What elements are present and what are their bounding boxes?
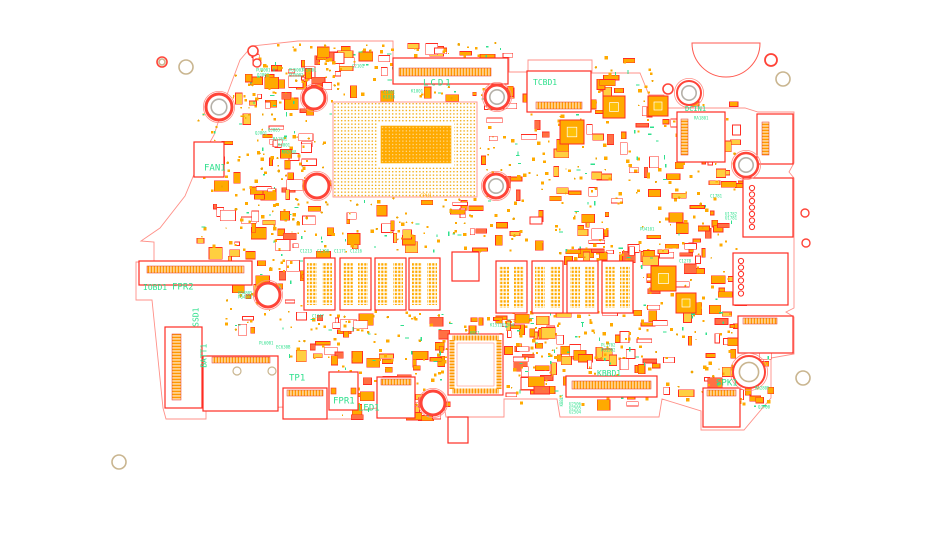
- component: [363, 378, 371, 385]
- via: [233, 95, 235, 97]
- pad: [693, 216, 696, 219]
- silk-tick: [387, 53, 391, 54]
- pad: [694, 331, 696, 333]
- pad: [239, 156, 241, 158]
- connector-kbbd1: [566, 376, 657, 397]
- via: [560, 116, 562, 118]
- silk-tick: [621, 398, 624, 399]
- ref-label-TP1: TP1: [289, 374, 305, 384]
- pad: [438, 372, 441, 375]
- component: [506, 393, 517, 397]
- pad: [658, 168, 662, 172]
- silk-tick: [235, 325, 237, 326]
- silk-tick: [273, 105, 276, 106]
- pad: [568, 169, 571, 172]
- silk-tick: [692, 315, 693, 318]
- via: [565, 168, 566, 169]
- pad: [604, 157, 608, 161]
- silk-tick: [664, 155, 665, 159]
- connector-wlan1: [203, 356, 278, 411]
- cpu-die: [381, 126, 451, 163]
- pad: [493, 147, 495, 149]
- pad: [293, 48, 296, 51]
- component: [733, 125, 741, 135]
- pad: [541, 355, 543, 357]
- via: [297, 221, 300, 224]
- via: [676, 333, 678, 335]
- pad: [637, 337, 639, 339]
- pad: [278, 268, 280, 270]
- pad: [510, 250, 512, 252]
- qfn-center-pad: [659, 274, 669, 284]
- component: [285, 160, 290, 169]
- silk-tick: [433, 361, 437, 362]
- silk-tick: [269, 214, 270, 216]
- component: [629, 168, 639, 173]
- pad: [578, 315, 581, 318]
- pad: [310, 46, 312, 48]
- pad: [662, 250, 664, 252]
- connector-pin-strip: [287, 390, 323, 396]
- via: [655, 351, 657, 353]
- pad: [375, 66, 378, 69]
- component: [729, 102, 738, 107]
- via: [565, 193, 567, 195]
- via: [342, 415, 344, 417]
- via: [521, 366, 523, 368]
- pad: [343, 94, 345, 96]
- silk-tick: [550, 361, 551, 364]
- pad: [717, 234, 719, 236]
- component: [293, 244, 298, 248]
- component-cluster: [595, 56, 654, 96]
- pad: [689, 175, 692, 178]
- ref-label-KBBD1: KBBD1: [597, 369, 621, 378]
- component: [615, 88, 624, 92]
- pad: [287, 266, 289, 268]
- component: [696, 268, 704, 273]
- via: [308, 137, 310, 139]
- pad: [340, 68, 342, 70]
- via: [296, 136, 298, 138]
- pad: [589, 319, 591, 321]
- via: [698, 253, 700, 255]
- via: [574, 178, 576, 180]
- ddr-pad-column: [307, 263, 317, 305]
- pad: [698, 302, 701, 305]
- pad: [618, 192, 621, 195]
- pad: [248, 84, 250, 86]
- via: [397, 239, 399, 241]
- pad: [332, 75, 335, 78]
- pad: [545, 383, 547, 385]
- silk-tick: [576, 169, 580, 170]
- component: [317, 47, 329, 57]
- silk-tick: [517, 330, 520, 331]
- component: [487, 118, 503, 123]
- component: [710, 211, 714, 215]
- pad: [474, 198, 477, 201]
- component: [495, 235, 502, 245]
- component: [347, 213, 356, 219]
- pad: [252, 93, 255, 96]
- silk-tick: [636, 356, 639, 357]
- via: [280, 67, 283, 70]
- via: [352, 359, 354, 361]
- pad: [301, 305, 303, 307]
- via: [457, 43, 460, 46]
- pad: [487, 317, 490, 320]
- pad: [283, 259, 285, 261]
- pad: [278, 248, 280, 250]
- pad: [382, 44, 384, 46]
- pad: [306, 160, 308, 162]
- mount-hole-ring: [801, 209, 809, 217]
- via: [387, 316, 390, 319]
- component: [251, 327, 255, 333]
- component: [627, 402, 639, 406]
- pad: [595, 356, 598, 359]
- silk-tick: [615, 72, 616, 75]
- pad: [228, 169, 230, 171]
- pad: [415, 373, 417, 375]
- pad: [610, 323, 613, 326]
- pad: [454, 230, 457, 233]
- via: [589, 314, 591, 316]
- ref-label-FPR2: FPR2: [172, 283, 194, 293]
- component: [297, 312, 307, 320]
- component: [476, 229, 487, 234]
- ref-label-small-K1801: K1801: [411, 88, 424, 93]
- pad: [628, 338, 631, 341]
- connector-pin-strip: [399, 68, 491, 76]
- mount-hole-ring: [765, 54, 777, 66]
- ref-label-small-PQ4313: PQ4313: [238, 294, 253, 299]
- pad: [666, 357, 668, 359]
- silk-tick: [531, 323, 535, 324]
- pad: [708, 384, 710, 386]
- component: [719, 288, 725, 292]
- ref-label-small-C2101: C2101: [352, 63, 365, 68]
- pad: [249, 186, 252, 189]
- silk-tick: [263, 174, 265, 175]
- pad: [698, 170, 700, 172]
- through-hole-pin: [749, 192, 754, 197]
- pad: [728, 278, 730, 280]
- component: [197, 238, 204, 243]
- pad: [589, 371, 592, 374]
- component: [591, 249, 604, 252]
- through-hole-pin: [738, 258, 743, 263]
- pad: [660, 302, 663, 305]
- via: [718, 369, 719, 370]
- silk-tick: [610, 362, 611, 364]
- pad: [548, 141, 550, 143]
- pad: [417, 382, 419, 384]
- silk-tick: [517, 152, 518, 156]
- mount-hole-ring: [253, 59, 261, 67]
- silk-tick: [364, 200, 365, 203]
- pad: [646, 329, 648, 331]
- pad: [634, 169, 637, 172]
- ref-label-small-RA2805: RA2805: [755, 385, 770, 390]
- pad: [532, 339, 535, 342]
- pad: [524, 357, 526, 359]
- pad: [507, 209, 510, 212]
- via: [549, 179, 551, 181]
- component: [653, 321, 667, 326]
- component: [557, 188, 569, 194]
- pad: [604, 354, 606, 356]
- pad: [375, 310, 377, 312]
- pad: [514, 202, 517, 205]
- connector-pin-strip: [743, 318, 777, 324]
- pad: [575, 212, 577, 214]
- component: [690, 206, 704, 209]
- via: [221, 185, 223, 187]
- silk-tick: [345, 367, 346, 370]
- silk-tick: [411, 351, 412, 354]
- pad: [702, 296, 705, 299]
- pad: [240, 115, 242, 117]
- pad: [591, 190, 593, 192]
- pad: [234, 286, 236, 288]
- via: [343, 316, 345, 318]
- connector-pin-strip: [172, 334, 181, 400]
- silk-tick: [449, 323, 453, 324]
- pad: [513, 368, 517, 372]
- mount-hole: [179, 60, 193, 74]
- component: [634, 310, 642, 315]
- pad: [290, 261, 293, 264]
- ddr-pad-column: [343, 263, 353, 305]
- mount-hole: [112, 455, 126, 469]
- component: [279, 272, 285, 280]
- pad: [561, 145, 565, 149]
- via: [370, 204, 372, 206]
- pad: [283, 270, 285, 272]
- via: [242, 115, 244, 117]
- via: [297, 232, 299, 234]
- pad: [715, 223, 717, 225]
- component: [403, 230, 412, 239]
- pad: [271, 156, 275, 160]
- pad: [519, 334, 522, 337]
- ref-label-LED1: LED1: [358, 404, 380, 414]
- via: [543, 388, 545, 390]
- silk-tick: [644, 362, 645, 366]
- pad: [405, 358, 407, 360]
- pad: [226, 318, 228, 320]
- pad: [323, 326, 325, 328]
- via: [411, 222, 413, 224]
- pad: [298, 155, 301, 158]
- pad: [269, 88, 271, 90]
- silk-tick: [581, 322, 584, 323]
- pad: [318, 62, 320, 64]
- qfn-center-pad: [610, 103, 619, 112]
- component: [393, 233, 396, 243]
- silk-tick: [650, 127, 654, 128]
- pad: [488, 126, 491, 129]
- mount-hole-ring: [112, 455, 126, 469]
- via: [291, 231, 292, 232]
- pad: [274, 118, 277, 121]
- component: [718, 292, 732, 298]
- pad: [684, 220, 687, 223]
- pad: [385, 367, 387, 369]
- connector-batt1: [165, 327, 202, 408]
- component: [351, 415, 363, 420]
- silk-tick: [665, 164, 666, 167]
- through-hole-pin: [738, 271, 743, 276]
- component: [308, 206, 321, 211]
- component: [716, 169, 726, 178]
- ddr-pad-column: [605, 266, 615, 308]
- silk-tick: [295, 207, 299, 208]
- via: [448, 53, 450, 55]
- ref-label-small-PU1502: PU1502: [601, 347, 616, 352]
- pad: [313, 357, 315, 359]
- pad: [522, 199, 525, 202]
- component: [230, 250, 240, 257]
- ref-label-small-K4001: K4001: [278, 142, 291, 147]
- component: [334, 53, 344, 64]
- pad: [301, 170, 304, 173]
- pad: [272, 190, 275, 193]
- pad: [520, 230, 523, 233]
- silk-tick: [283, 327, 284, 329]
- component: [516, 190, 520, 200]
- pad: [234, 244, 236, 246]
- pad: [279, 101, 281, 103]
- silk-tick: [663, 179, 667, 180]
- pad: [736, 248, 738, 250]
- silk-tick: [415, 223, 419, 224]
- pad: [746, 392, 749, 395]
- pad: [650, 292, 652, 294]
- via: [643, 277, 644, 278]
- pad: [297, 348, 300, 351]
- silk-tick: [641, 265, 642, 269]
- pad: [250, 320, 252, 322]
- via: [556, 347, 558, 349]
- silk-tick: [650, 258, 653, 259]
- pad: [397, 334, 400, 337]
- component: [542, 132, 549, 137]
- pad: [603, 246, 605, 248]
- pad: [434, 92, 436, 94]
- pad: [240, 218, 243, 221]
- pad: [629, 179, 631, 181]
- pad: [647, 173, 650, 176]
- via: [326, 203, 328, 205]
- ref-label-small-U1504: U1504: [502, 322, 515, 327]
- silk-tick: [405, 337, 409, 338]
- pad: [543, 160, 546, 163]
- component: [620, 331, 629, 342]
- component: [730, 324, 735, 327]
- pad: [255, 97, 258, 100]
- pad: [374, 380, 376, 382]
- pad: [225, 323, 228, 326]
- pad: [548, 353, 550, 355]
- silk-tick: [548, 356, 550, 357]
- pad: [535, 129, 537, 131]
- component: [482, 156, 486, 165]
- via: [559, 252, 562, 255]
- component: [698, 226, 709, 231]
- pad: [658, 207, 662, 211]
- connector-pin-strip: [681, 119, 688, 155]
- pad: [391, 48, 394, 51]
- ec-qfp-chip: [448, 334, 503, 395]
- silk-tick: [587, 202, 588, 205]
- silk-tick: [582, 323, 583, 327]
- pad: [243, 95, 245, 97]
- pad: [344, 325, 347, 328]
- pad: [529, 381, 532, 384]
- pad: [697, 266, 699, 268]
- pad: [628, 332, 631, 335]
- component: [220, 210, 235, 220]
- connector-side-pad: [331, 388, 336, 394]
- ref-label-small-C1781: C1781: [710, 193, 723, 198]
- silk-tick: [626, 257, 630, 258]
- pad: [685, 192, 687, 194]
- via: [295, 79, 298, 82]
- pad: [543, 153, 545, 155]
- ddr-chip: [375, 258, 406, 310]
- component: [299, 134, 313, 141]
- silk-tick: [260, 274, 262, 275]
- pad: [725, 241, 727, 243]
- via: [322, 166, 324, 168]
- via: [277, 170, 280, 173]
- ec-pins-top: [452, 336, 499, 341]
- ref-label-small-C1278: C1278: [679, 258, 692, 263]
- via: [345, 321, 347, 323]
- via: [260, 167, 263, 170]
- pad: [665, 217, 668, 220]
- mount-hole-inner: [490, 90, 504, 104]
- pad: [649, 68, 651, 70]
- pad: [666, 383, 669, 386]
- ddr-pad-column: [322, 263, 332, 305]
- silk-tick: [453, 233, 455, 234]
- connector-pin-strip: [762, 122, 769, 155]
- pad: [463, 210, 465, 212]
- pad: [683, 163, 685, 165]
- via: [245, 117, 247, 119]
- pad: [675, 188, 678, 191]
- via: [369, 49, 372, 52]
- via: [678, 386, 680, 388]
- pad: [503, 136, 506, 139]
- pad: [411, 318, 413, 320]
- connector-usba1: [743, 178, 793, 237]
- mount-hole: [796, 371, 810, 385]
- pad: [441, 370, 444, 373]
- ddr-pad-column: [585, 266, 595, 308]
- component: [473, 92, 476, 95]
- mount-hole: [302, 171, 331, 200]
- component: [569, 191, 581, 195]
- component: [637, 339, 652, 343]
- pad: [379, 349, 382, 352]
- component: [643, 359, 657, 363]
- component: [451, 210, 465, 214]
